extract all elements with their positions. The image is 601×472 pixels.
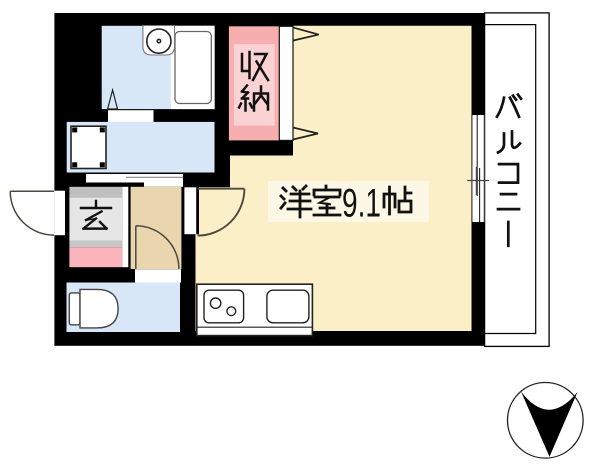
svg-text:9.1: 9.1 <box>342 182 381 226</box>
